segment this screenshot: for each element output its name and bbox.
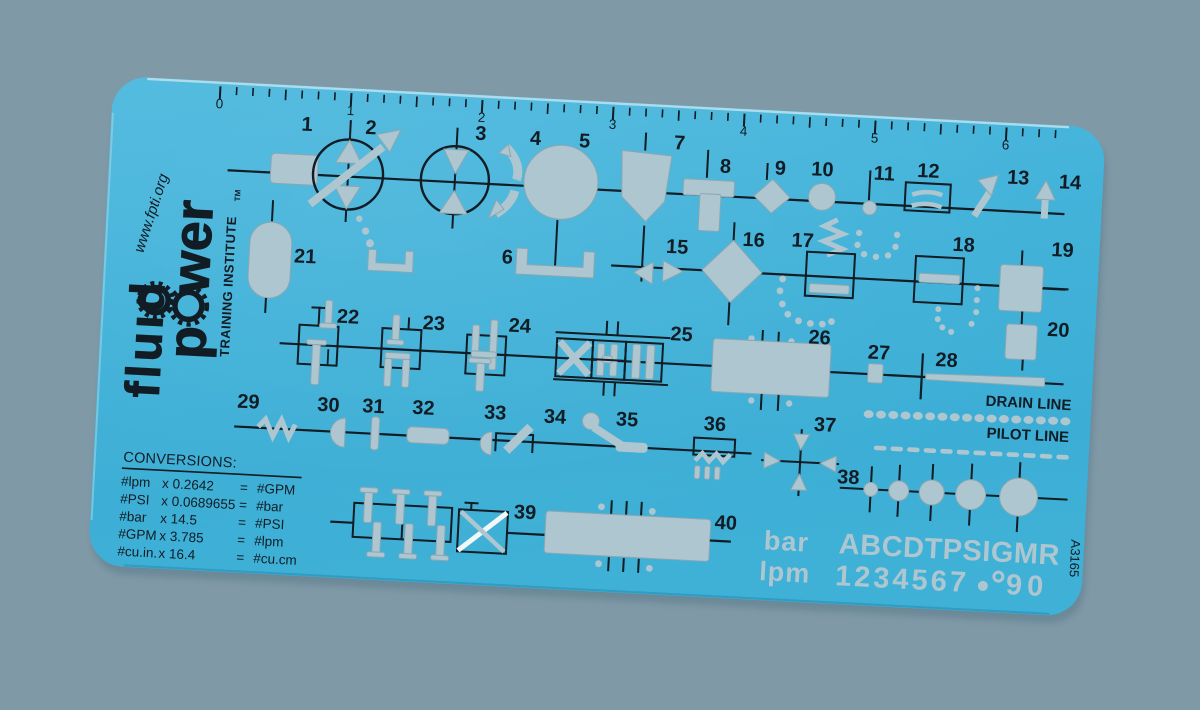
svg-text:#PSI: #PSI xyxy=(120,491,150,508)
svg-text:11: 11 xyxy=(873,163,895,186)
svg-text:37: 37 xyxy=(813,414,836,437)
svg-text:A3165: A3165 xyxy=(1066,539,1083,577)
svg-text:23: 23 xyxy=(422,312,445,335)
svg-text:#cu.cm: #cu.cm xyxy=(253,551,297,568)
svg-text:=: = xyxy=(238,515,247,530)
svg-text:=: = xyxy=(236,550,245,565)
svg-text:34: 34 xyxy=(543,406,567,429)
svg-text:30: 30 xyxy=(317,394,340,417)
svg-text:40: 40 xyxy=(714,512,737,535)
svg-text:5: 5 xyxy=(578,130,590,153)
svg-text:2: 2 xyxy=(365,117,377,140)
svg-text:17: 17 xyxy=(791,229,814,252)
svg-text:#lpm: #lpm xyxy=(121,474,151,491)
svg-text:x 14.5: x 14.5 xyxy=(160,511,198,528)
svg-text:22: 22 xyxy=(336,306,359,329)
svg-text:18: 18 xyxy=(952,234,975,257)
svg-text:27: 27 xyxy=(867,342,890,365)
svg-text:=: = xyxy=(239,497,248,512)
svg-text:3: 3 xyxy=(475,123,487,146)
svg-text:x 3.785: x 3.785 xyxy=(159,528,204,545)
svg-text:1: 1 xyxy=(346,103,354,118)
svg-text:31: 31 xyxy=(362,395,385,418)
svg-text:38: 38 xyxy=(837,466,860,489)
svg-text:29: 29 xyxy=(237,391,260,414)
svg-text:#cu.in.: #cu.in. xyxy=(117,544,158,561)
svg-text:19: 19 xyxy=(1051,239,1074,262)
svg-text:10: 10 xyxy=(811,158,834,181)
svg-text:12: 12 xyxy=(917,160,940,183)
svg-text:#lpm: #lpm xyxy=(254,533,284,550)
svg-text:4: 4 xyxy=(530,128,543,151)
svg-text:0: 0 xyxy=(215,96,223,111)
svg-text:3: 3 xyxy=(608,117,616,132)
svg-text:bar: bar xyxy=(763,525,810,557)
svg-text:21: 21 xyxy=(293,245,316,268)
svg-text:32: 32 xyxy=(412,397,435,420)
svg-text:39: 39 xyxy=(513,501,536,524)
svg-text:p: p xyxy=(157,324,219,360)
svg-text:#bar: #bar xyxy=(119,509,147,525)
svg-text:16: 16 xyxy=(742,229,765,252)
svg-text:90: 90 xyxy=(1005,569,1049,603)
svg-text:#GPM: #GPM xyxy=(257,481,296,498)
svg-text:15: 15 xyxy=(665,236,688,259)
svg-text:1: 1 xyxy=(301,114,313,137)
svg-text:7: 7 xyxy=(673,132,685,155)
svg-text:25: 25 xyxy=(670,323,693,346)
svg-text:13: 13 xyxy=(1007,167,1030,190)
svg-text:=: = xyxy=(237,532,246,547)
svg-text:28: 28 xyxy=(935,349,958,372)
svg-text:6: 6 xyxy=(1002,137,1010,152)
svg-text:#GPM: #GPM xyxy=(118,526,157,543)
svg-text:9: 9 xyxy=(774,157,786,180)
svg-text:8: 8 xyxy=(719,156,731,179)
svg-text:x 0.2642: x 0.2642 xyxy=(162,476,215,494)
svg-text:36: 36 xyxy=(703,413,726,436)
svg-text:#PSI: #PSI xyxy=(255,516,285,533)
svg-text:33: 33 xyxy=(484,402,507,425)
svg-text:TM: TM xyxy=(233,189,243,201)
svg-text:35: 35 xyxy=(615,408,638,431)
svg-text:4: 4 xyxy=(739,124,748,139)
svg-text:#bar: #bar xyxy=(256,498,284,514)
svg-text:14: 14 xyxy=(1058,171,1082,194)
svg-text:6: 6 xyxy=(501,246,513,269)
svg-text:20: 20 xyxy=(1047,319,1070,342)
svg-text:x 16.4: x 16.4 xyxy=(158,546,196,563)
svg-text:wer: wer xyxy=(160,198,225,295)
svg-text:26: 26 xyxy=(808,326,831,349)
svg-text:lpm: lpm xyxy=(759,556,812,589)
svg-text:=: = xyxy=(240,480,249,495)
svg-text:5: 5 xyxy=(871,130,879,145)
svg-text:24: 24 xyxy=(508,315,532,338)
